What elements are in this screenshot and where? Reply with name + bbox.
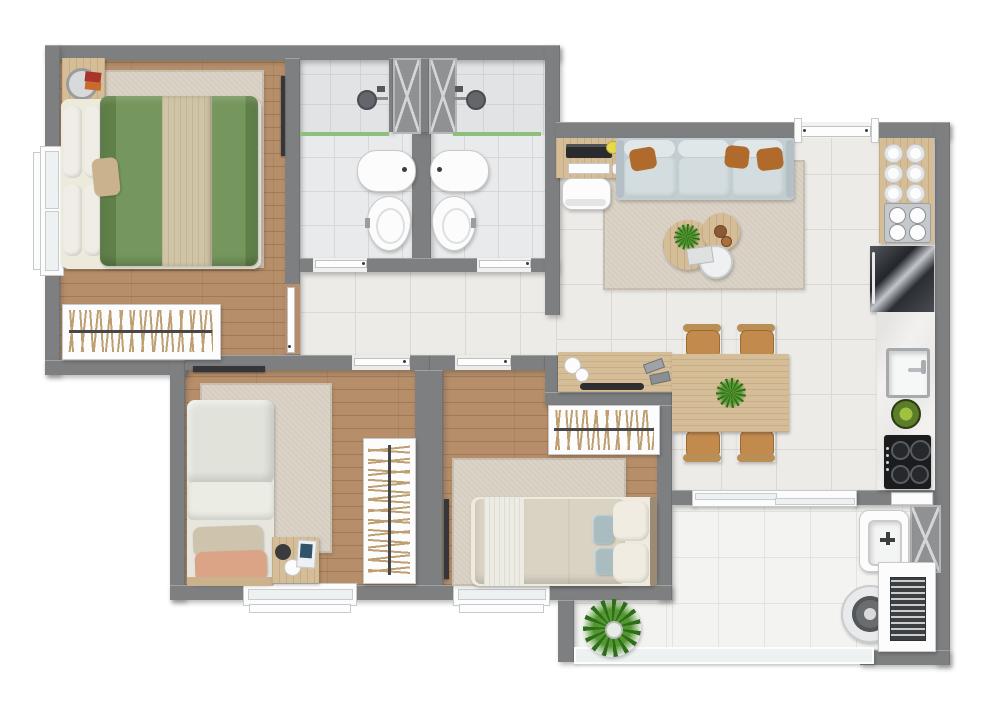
bed-3-runner [484,497,524,586]
kitchen-faucet-base [921,360,926,374]
shower-2-glass-partition [453,132,541,136]
kitchen-herb-bowl [891,399,921,429]
bathroom-1-basin [357,150,416,192]
balcony-door-stub-wall [672,490,694,505]
bathrooms-right-wall [545,45,560,315]
bathroom-1-door-leaf [315,260,367,268]
knob-4 [886,468,889,471]
bed-3-pillow-teal-1 [592,514,614,544]
master-window-pane-top [45,151,59,209]
stainless-tray [884,203,931,243]
balcony-left-wall [558,600,574,662]
bedroom-2-window-pane [248,589,353,600]
bowl-4 [909,224,926,241]
plate-4 [906,164,925,183]
chair-back-bar [683,454,721,462]
master-door-handle [288,345,291,348]
dining-chair-bottom-right [737,430,775,462]
bedroom-divider-wall [415,370,443,585]
sofa-arm-right [786,140,794,198]
bedroom-2-door-leaf [354,358,410,366]
bedroom-3-window-pane [458,589,546,600]
bathroom-2-door-handle [526,262,529,265]
master-window-pane-bottom [45,211,59,271]
master-door-leaf [287,287,295,353]
coffee-table-plant [674,224,700,250]
burner-2 [910,440,931,461]
shower-1-glass-partition [300,132,389,136]
shower-2-head [466,90,486,110]
refrigerator [870,246,934,312]
sliding-door-panel-left [695,493,777,500]
bedroom-2-wardrobe [363,438,416,584]
bed-2-footboard [187,577,274,586]
laundry-tub-basin [868,520,902,566]
plate-5 [884,184,903,203]
snack-bowl-2 [721,236,732,247]
chair-back-bar [737,454,775,462]
master-bottom-step-wall [45,360,188,375]
wardrobe-3-rail [554,428,654,431]
toilet-1-bowl-ring [376,208,405,244]
dining-chair-top-left [683,324,721,356]
magazine-cover [300,544,313,559]
bathroom-1-basin-drain [402,167,407,172]
right-wall [935,122,950,665]
bedroom-2-left-wall [170,360,185,600]
bedroom-3-bed [471,497,657,586]
plate-1 [884,144,903,163]
living-top-wall [556,122,798,138]
knob-3 [886,461,889,464]
entry-door-frame-right [871,118,879,143]
entry-door-hinge [803,129,806,132]
entry-door-handle [865,129,868,132]
sideboard [558,352,672,392]
sideboard-chrome-item-2 [649,371,671,385]
dining-table [672,354,789,432]
knob-1 [886,447,889,450]
knob-2 [886,454,889,457]
keyboard [568,163,610,174]
sofa-cushion-orange-3 [756,146,784,171]
nightstand-lamp [275,544,291,560]
bed-2-quilt [187,400,274,484]
master-rack-rail [69,330,212,333]
desk-chair-back [565,199,606,206]
bowl-1 [889,207,906,224]
gas-cooktop [884,435,931,489]
entry-door-leaf [801,126,871,137]
washer-hub [864,608,876,620]
master-pillow-1 [63,106,82,178]
toilet-2-hinge [471,218,476,228]
toilet-1-hinge [365,218,370,228]
floor-plan-canvas [0,0,1000,719]
bathroom-divider-wall [412,130,431,260]
toilet-2-bowl-ring [442,208,471,244]
bedroom-3-door-leaf [457,358,511,366]
bedroom-2-window-sill [249,604,351,613]
utility-cabinet-vents [890,577,926,641]
shower-2-valve [455,86,463,92]
master-clothes-rack [62,304,221,360]
dining-chair-top-right [737,324,775,356]
bed-2-fold [187,482,274,520]
ventilation-shaft-1 [393,58,421,134]
sofa-back-cushion-2 [678,140,729,157]
bowl-2 [909,207,926,224]
refrigerator-handle [872,252,875,304]
kitchen-shelf [879,138,934,243]
bathroom-2-basin-drain [437,167,442,172]
sideboard-tray [580,383,644,390]
decor-books-2 [85,81,102,91]
top-wall [45,45,560,60]
utility-cabinet [878,562,936,652]
desk-chair [562,178,611,210]
master-pillow-3 [63,184,82,256]
bowl-3 [889,224,906,241]
master-window-sill [33,152,41,270]
balcony-plant [583,599,641,657]
bathroom-1-door-handle [362,262,365,265]
bedroom-2-bed [187,400,274,584]
coffee-table-book [686,245,714,265]
bedroom-2-door-handle [403,360,406,363]
sofa [616,138,794,200]
bedroom-3-window-sill [459,604,544,613]
bedroom-2-tv [193,366,265,372]
plate-6 [906,184,925,203]
ventilation-shaft-2 [429,58,457,134]
sofa-arm-left [616,140,624,198]
bedroom-3-jog-wall-horizontal [545,392,672,405]
sofa-cushion-orange-2 [724,145,750,169]
sliding-door-panel-right [775,498,855,505]
plate-2 [906,144,925,163]
laundry-door-threshold [891,492,933,505]
sofa-cushion-orange-1 [628,146,657,172]
burner-4 [910,465,929,484]
balcony-plant-pot [605,621,623,639]
bedroom-2-nightstand [272,537,319,583]
laundry-faucet-base [886,532,890,545]
bedroom-3-tv [444,499,449,579]
shower-1-valve [377,86,385,92]
bathroom-2-door-leaf [479,260,531,268]
bed-3-pillow-white-1 [613,501,649,541]
plate-3 [884,164,903,183]
sofa-seat-2 [679,158,731,198]
wardrobe-2-rail [388,445,391,575]
master-tv [281,76,285,156]
sideboard-bowl-2 [575,368,589,382]
desk [556,138,623,178]
bedroom-2-window [243,583,357,606]
hallway-floor [300,272,560,368]
master-accent-pillow [91,157,121,198]
bed-3-headboard [650,497,657,586]
bedroom-3-door-handle [504,360,507,363]
bedroom-3-window [453,583,550,606]
nightstand-magazine [296,539,317,568]
dining-chair-bottom-left [683,430,721,462]
burner-1 [891,441,910,460]
dining-table-plant [716,378,746,408]
master-bed-runner [162,96,212,266]
balcony-sliding-door [692,490,857,507]
shower-1-head [357,90,377,110]
burner-3 [891,465,910,484]
bed-3-pillow-white-2 [613,543,649,583]
bedroom-3-wardrobe [548,405,660,455]
